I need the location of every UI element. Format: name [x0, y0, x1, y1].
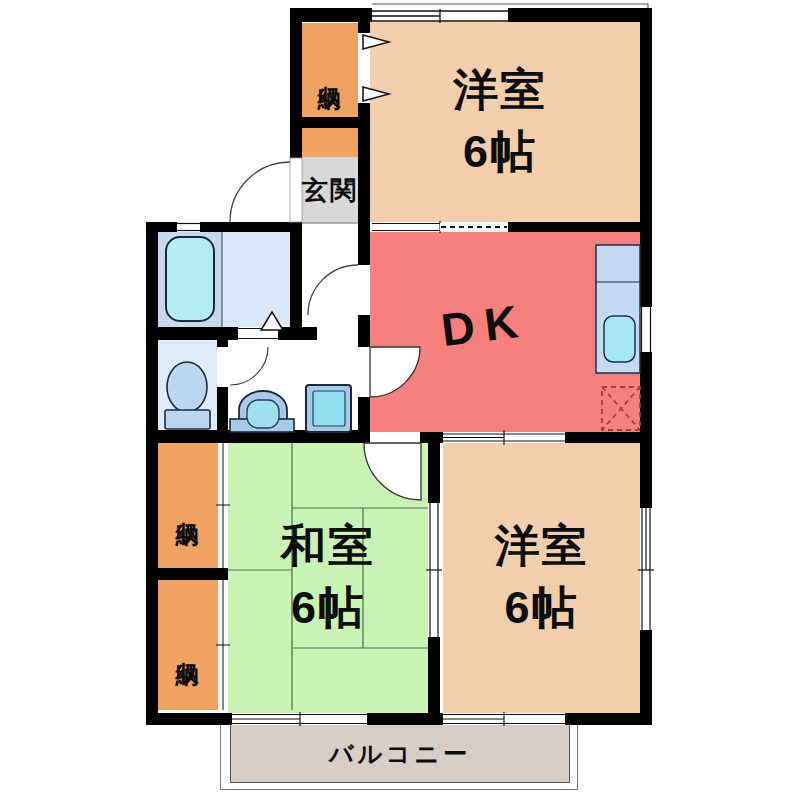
wall-segment — [217, 387, 228, 430]
wall-segment — [428, 443, 440, 503]
sliding-door-japanese-western — [426, 503, 442, 637]
wall-segment — [640, 8, 652, 307]
shoe-cabinet — [302, 128, 358, 157]
wall-segment — [146, 713, 232, 725]
wall-segment — [640, 630, 652, 725]
bathroom-tub-area — [158, 232, 222, 327]
room-entrance — [302, 157, 358, 223]
wall-segment — [358, 315, 370, 347]
room-western-bottom — [443, 443, 640, 713]
wall-segment — [367, 713, 443, 725]
room-japanese — [228, 443, 428, 713]
wall-segment — [146, 430, 370, 443]
wall-segment — [278, 327, 317, 340]
wall-segment — [217, 340, 228, 347]
window-bathroom — [177, 222, 200, 232]
room-storage-left-lower — [158, 580, 218, 710]
door-arc-entrance — [230, 162, 290, 222]
room-dk — [370, 232, 640, 432]
floor-plan: 収納 玄関 洋室 6帖 DK 和室 6帖 洋室 6帖 収納 収納 バルコニー — [0, 0, 800, 800]
wall-segment — [420, 432, 443, 443]
wall-segment — [200, 222, 302, 232]
window-western-top — [372, 9, 508, 23]
wall-segment — [146, 222, 158, 725]
wall-segment — [302, 117, 358, 128]
room-western-top — [370, 22, 640, 222]
hallway — [302, 223, 358, 340]
balcony-deck — [230, 723, 570, 783]
wall-segment — [146, 327, 238, 340]
entrance-door — [230, 158, 302, 222]
room-storage-top — [302, 23, 358, 117]
wall-segment — [508, 8, 652, 22]
wall-segment — [358, 103, 370, 265]
wall-segment — [428, 637, 440, 713]
wall-segment — [158, 568, 228, 580]
window-dk-right — [640, 307, 652, 352]
washroom — [228, 340, 358, 430]
wall-segment — [358, 8, 370, 33]
wall-segment — [565, 713, 652, 725]
wall-segment — [508, 222, 640, 232]
wall-segment — [640, 352, 652, 508]
wall-segment — [290, 232, 302, 327]
bathroom-wash-area — [222, 232, 290, 327]
room-toilet — [158, 340, 217, 430]
room-storage-left-upper — [158, 443, 218, 568]
wall-segment — [565, 432, 652, 443]
wall-segment — [290, 8, 302, 158]
window-western-bottom-right — [638, 508, 654, 630]
